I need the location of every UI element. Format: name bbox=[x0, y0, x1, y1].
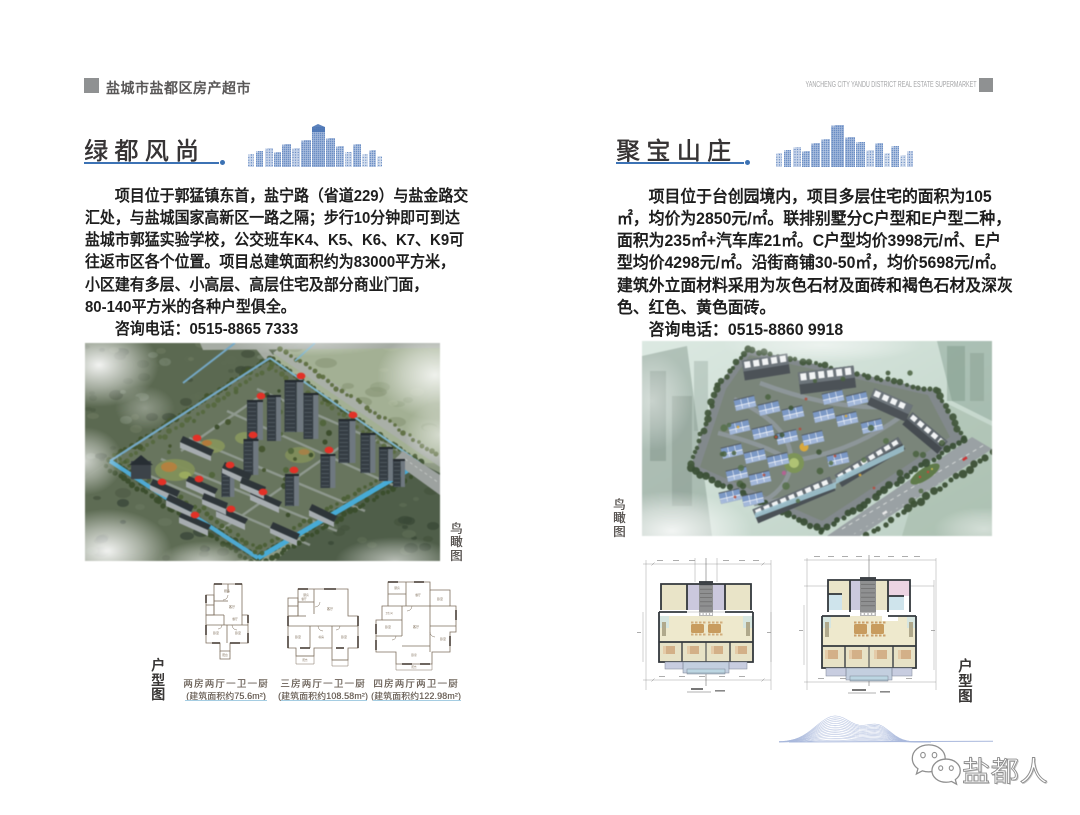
svg-text:阳台: 阳台 bbox=[411, 665, 417, 669]
svg-text:卧室: 卧室 bbox=[341, 634, 347, 639]
svg-text:厨房: 厨房 bbox=[394, 586, 400, 590]
svg-text:卫生间: 卫生间 bbox=[385, 611, 393, 615]
svg-text:厨房: 厨房 bbox=[303, 593, 309, 597]
svg-text:卧室: 卧室 bbox=[385, 624, 391, 629]
svg-text:阳台: 阳台 bbox=[302, 658, 308, 662]
svg-text:客厅: 客厅 bbox=[229, 604, 236, 609]
svg-text:餐厅: 餐厅 bbox=[301, 597, 307, 601]
svg-text:卧室: 卧室 bbox=[213, 630, 219, 635]
svg-text:餐厅: 餐厅 bbox=[415, 593, 421, 597]
svg-text:餐厅: 餐厅 bbox=[232, 617, 238, 621]
svg-text:卧室: 卧室 bbox=[437, 596, 443, 601]
svg-text:卧室: 卧室 bbox=[411, 653, 417, 657]
svg-text:书房: 书房 bbox=[318, 634, 324, 639]
svg-text:卧室: 卧室 bbox=[440, 636, 446, 641]
svg-text:卧室: 卧室 bbox=[295, 634, 301, 639]
svg-text:客厅: 客厅 bbox=[327, 606, 334, 611]
svg-text:阳台: 阳台 bbox=[222, 653, 228, 657]
svg-text:厨房: 厨房 bbox=[224, 588, 230, 593]
svg-text:卧室: 卧室 bbox=[235, 630, 241, 635]
svg-text:客厅: 客厅 bbox=[413, 624, 420, 629]
